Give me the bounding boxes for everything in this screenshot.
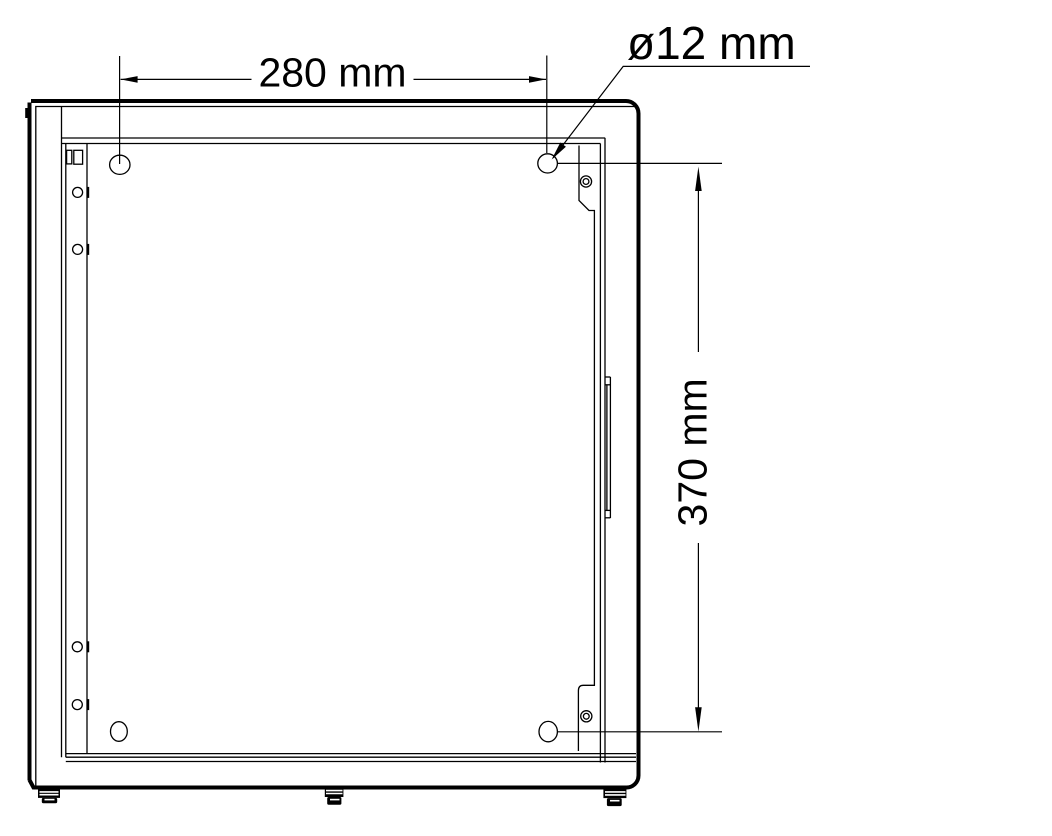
small-hole-3 [72,642,82,652]
arrowhead-right [529,76,546,83]
vent-slot-large [74,150,83,164]
shell-inner-fold [36,107,635,786]
hinge-notch [25,108,29,118]
leader-arrowhead [552,143,566,160]
leveling-foot-left [38,789,60,803]
arrowhead-up [695,167,702,191]
mounting-hole-bottom-right [539,721,557,741]
small-hole-2 [73,244,83,254]
screw-top-outer [580,176,591,187]
arrowhead-down [695,707,702,731]
screw-bottom-inner [583,713,589,719]
screw-top-inner [583,179,589,185]
mounting-hole-bottom-left [111,722,128,742]
left-rail-holes [72,187,88,710]
screw-bottom-outer [581,711,592,722]
mounting-holes [110,154,558,742]
arrowhead-left [121,76,138,83]
vent-slot-small [67,150,72,164]
dimension-height-label: 370 mm [669,378,715,526]
leveling-feet [38,788,626,806]
inner-frame-lines [62,107,637,763]
technical-drawing-canvas: 280 mm ø12 mm 370 mm [0,0,1052,836]
dimension-width-label: 280 mm [258,50,406,96]
leader-line [553,66,810,158]
small-hole-1 [73,187,83,197]
enclosure-outline [25,101,638,788]
leveling-foot-middle [325,788,344,805]
technical-drawing: 280 mm ø12 mm 370 mm [0,0,1052,836]
leveling-foot-right [603,789,626,806]
bracket-screws [580,176,592,722]
vent-slots [67,150,83,164]
right-bracket-edge [578,146,594,752]
small-hole-4 [72,700,82,710]
enclosure-shell-edge [30,101,639,788]
diameter-label: ø12 mm [627,17,796,69]
